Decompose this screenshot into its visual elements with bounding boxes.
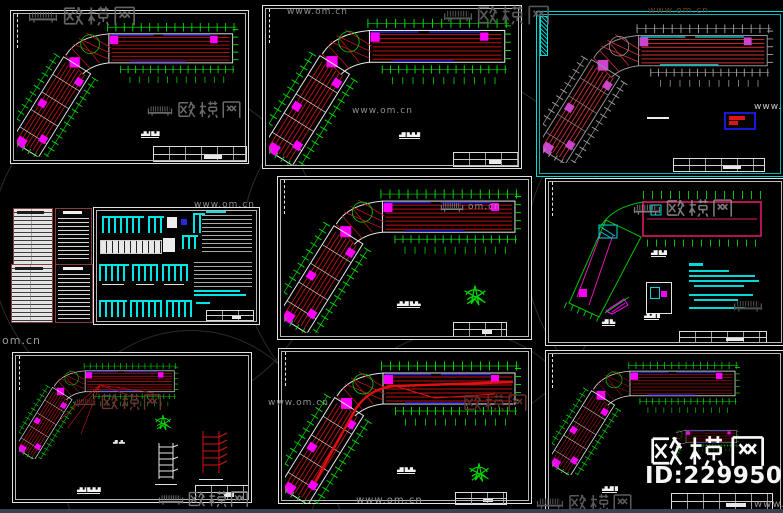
cyan-note-line [194, 290, 240, 292]
spec-table [13, 208, 53, 265]
north-arrow [467, 461, 491, 485]
url-watermark: om.cn [2, 334, 41, 347]
breaker-group [162, 264, 188, 281]
group-label-line [164, 284, 184, 285]
legend-text-column [202, 215, 252, 253]
table-rows [58, 274, 90, 320]
url-watermark: www.om.cn [648, 6, 709, 16]
sheet-floor-plan-1: ▄█▄▌█▄█ [10, 10, 249, 164]
breaker-group [132, 264, 158, 281]
cyan-note-line [194, 294, 246, 296]
riser-diagram-white [153, 441, 179, 481]
title-block [195, 485, 249, 500]
logo-glyph [729, 116, 745, 120]
riser-label-line [155, 484, 177, 485]
detail-drawing-box [646, 282, 672, 314]
title-block [453, 152, 519, 167]
sheet-floor-plan-3: ▄█▄█▌█▄█▄ [277, 176, 532, 340]
breaker-group [102, 216, 144, 233]
breaker-group [99, 264, 129, 281]
url-watermark: www.om.cn [268, 398, 329, 408]
url-watermark: www.om.cn [287, 7, 348, 17]
title-block [453, 322, 507, 337]
north-arrow [153, 413, 173, 433]
drawing-title: ▄█▄█▌█ [602, 487, 617, 493]
logo-stamp [724, 112, 756, 130]
detail-label: ▄█▌█▄ [602, 320, 615, 326]
title-block [673, 158, 765, 172]
drawing-title: ▄█▌█▄█▄█ [399, 133, 420, 139]
panel-box [163, 238, 175, 252]
spec-table [55, 208, 92, 265]
title-block [206, 310, 254, 321]
table-rows [58, 218, 89, 262]
spec-table [11, 264, 53, 323]
drawing-title: ▄█▄█▌█▄█▄ [397, 302, 420, 308]
mid-label: ▄█▌ ▄█▄ [113, 441, 124, 444]
url-watermark: www.om.cn [194, 200, 255, 210]
center-dash-mark [647, 117, 669, 119]
riser-diagram-red [195, 429, 229, 475]
cyan-note-line [196, 302, 210, 304]
panel-box [167, 217, 177, 228]
notes-text-column [194, 262, 252, 288]
group-label-line [136, 284, 154, 285]
sheet-floor-plan-4: ▄█▌ ▄█▄ ▄█▄▌█▄█▄█ [12, 352, 252, 503]
title-block [679, 331, 767, 343]
breaker-group [99, 300, 127, 317]
riser-label-line [199, 479, 223, 480]
drawing-title: ▄█▌█▄█ [651, 251, 666, 257]
cyan-note-line [206, 211, 226, 213]
sheet-roof-plan: ▄█▌█▄█ ▄█▄█▌█ ▄█▌█▄ [545, 178, 783, 346]
floor-plan-drawing [284, 182, 525, 333]
floor-plan-drawing [17, 16, 242, 157]
drawing-title: ▄█▄▌█▄█▄█ [77, 488, 100, 494]
cad-preview-image: ▄█▄▌█▄█ ▄█▌█▄█▄█ [0, 0, 783, 513]
table-header [17, 211, 44, 214]
url-watermark: www.om.cn [356, 495, 423, 506]
bottom-edge-bar [0, 509, 783, 513]
floor-plan-drawing [269, 11, 515, 165]
model-id-watermark: ID:2299504 [645, 463, 783, 489]
drawing-title: ▄█▌█▄█▄ [397, 468, 415, 474]
group-label-line [102, 284, 124, 285]
title-block [153, 146, 247, 162]
spec-table [55, 264, 93, 323]
url-watermark: www.om.cn [352, 106, 413, 116]
sheet-system-diagram [93, 207, 260, 325]
breaker-group [166, 300, 192, 317]
blue-box [181, 219, 187, 225]
logo-glyph [729, 121, 738, 125]
sheet-floor-plan-5: ▄█▌█▄█▄ [278, 348, 532, 504]
table-header [15, 267, 43, 270]
meter-strip [100, 240, 162, 254]
north-arrow [462, 283, 488, 309]
url-watermark: www. [754, 102, 782, 112]
table-header [63, 267, 83, 270]
detail-label: ▄█▄█▌█ [644, 314, 659, 320]
title-block [455, 492, 507, 505]
breaker-group [148, 216, 164, 233]
sheet-structural-plan [536, 11, 783, 177]
table-header [63, 211, 82, 214]
breaker-group [130, 300, 162, 317]
structural-plan-drawing [543, 17, 777, 163]
detail-drawing-scribble [604, 295, 630, 315]
drawing-title: ▄█▄▌█▄█ [141, 132, 159, 138]
sheet-floor-plan-2: ▄█▌█▄█▄█ [262, 5, 522, 169]
breaker-group [182, 235, 198, 249]
